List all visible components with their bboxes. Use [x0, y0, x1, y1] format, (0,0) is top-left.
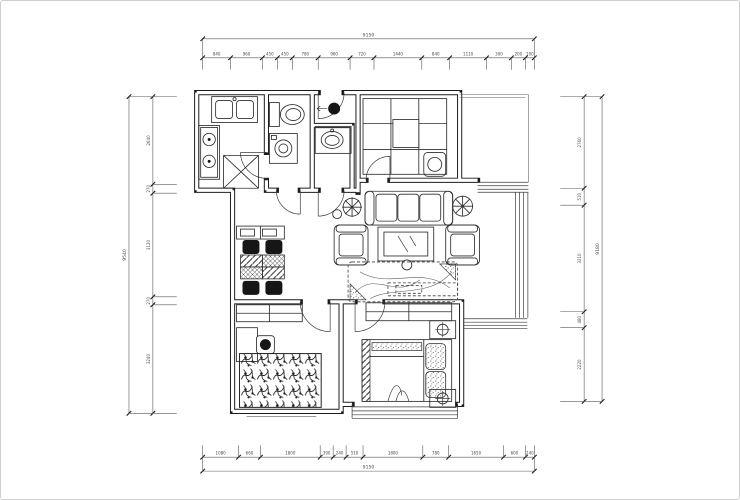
bedroom-left — [237, 305, 322, 408]
sofa-single-left-cushion — [339, 234, 363, 256]
burner-1-center — [208, 138, 211, 141]
fan-arrow-icon — [317, 106, 327, 111]
study-chair — [424, 152, 446, 176]
dim-label: 720 — [358, 51, 366, 56]
dim-label: 600 — [511, 451, 519, 456]
dining-table-q2 — [262, 255, 284, 267]
sink-basin-right — [237, 101, 254, 119]
vanity-counter — [315, 126, 351, 153]
blanket-fold — [388, 386, 409, 402]
dim-label: 780 — [432, 451, 440, 456]
bedroom-master — [362, 303, 456, 408]
window-bay-master — [352, 404, 458, 418]
sofa-single-left-arm-top — [336, 225, 366, 232]
pillow-1 — [426, 344, 446, 370]
dim-label: 2760 — [577, 137, 582, 148]
dim-total-label: 9150 — [363, 465, 375, 471]
sofa-cushion-1 — [376, 194, 397, 221]
sink-basin-left — [216, 101, 233, 119]
dim-label: 3210 — [577, 253, 582, 264]
dim-total-label: 9180 — [595, 243, 601, 255]
dim-label: 3120 — [146, 239, 151, 250]
washer-panel — [271, 135, 276, 139]
kitchen-door — [241, 152, 267, 178]
dim-label: 100 — [526, 51, 534, 56]
wardrobe-master-dividers — [366, 303, 452, 321]
sofa-armrest-right — [444, 191, 453, 225]
sideboard-item-2 — [262, 229, 276, 236]
floor-drain-box — [224, 155, 259, 188]
window-bay-right — [515, 192, 527, 317]
dimension-bottom: 1080660180039024051018007801650600240915… — [200, 445, 536, 473]
dim-label: 1800 — [388, 451, 399, 456]
dining-table-q1 — [241, 255, 263, 267]
dim-label: 3240 — [146, 354, 151, 365]
dining-table-q3 — [241, 267, 263, 279]
washer-drum — [275, 140, 292, 157]
desk-chair-seat — [260, 339, 271, 350]
window-top-right — [478, 182, 529, 192]
sink-faucet — [233, 98, 236, 101]
lamp-top-cross — [435, 322, 450, 337]
study-chair-seat — [428, 157, 442, 171]
sofa-three-seat — [365, 191, 453, 225]
dim-label: 240 — [526, 451, 534, 456]
dim-total-label: 9150 — [363, 32, 375, 38]
dim-label: 200 — [515, 51, 523, 56]
dim-label: 300 — [495, 51, 503, 56]
sideboard-item-1 — [241, 229, 255, 236]
washer-drum-inner — [279, 144, 288, 153]
kettle — [402, 260, 412, 270]
dim-label: 840 — [213, 51, 221, 56]
dim-label: 270 — [146, 184, 151, 192]
burner-2-center — [208, 160, 211, 163]
plant-left-leaves — [342, 197, 362, 217]
floor-plan-svg: 8409604504507809607201440840111030020010… — [1, 1, 739, 499]
sofa-cushion-2 — [398, 194, 419, 221]
dim-label: 1650 — [471, 451, 482, 456]
dim-total-label: 9540 — [122, 249, 128, 261]
dim-label: 480 — [577, 315, 582, 323]
dim-label: 510 — [577, 192, 582, 200]
dim-label: 840 — [432, 51, 440, 56]
dimension-right: 2760510321048022209180 — [560, 94, 604, 403]
living-room — [333, 191, 480, 302]
bed-left-floral — [240, 354, 322, 408]
pillow-2 — [426, 372, 446, 398]
dim-label: 2640 — [146, 135, 151, 146]
dim-label: 510 — [351, 451, 359, 456]
rug-corner-2 — [440, 264, 456, 280]
exhaust-fan-icon — [328, 103, 340, 115]
dim-label: 390 — [323, 451, 331, 456]
sofa-single-left-arm-bottom — [336, 258, 366, 265]
wardrobe-left-dividers — [237, 305, 303, 322]
stove-top — [201, 127, 218, 177]
dining-chair-3 — [243, 281, 260, 295]
tv-bench — [388, 283, 458, 296]
toilet-tank — [269, 103, 279, 127]
dining-table-q4 — [262, 267, 284, 279]
master-bedroom-door — [355, 302, 385, 332]
dining-chair-2 — [265, 240, 282, 254]
dim-label: 450 — [281, 51, 289, 56]
dining-chair-4 — [265, 281, 282, 295]
dimension-left: 2640270312027032409540 — [122, 94, 177, 415]
dim-label: 240 — [336, 451, 344, 456]
tatami-center-table — [393, 120, 419, 148]
plant-left-small — [333, 210, 342, 219]
dining-chair-1 — [243, 240, 260, 254]
dim-label: 960 — [243, 51, 251, 56]
dimension-top: 8409604504507809607201440840111030020010… — [200, 32, 536, 69]
washing-machine — [269, 133, 297, 163]
dim-label: 450 — [266, 51, 274, 56]
dim-label: 660 — [246, 451, 254, 456]
sofa-cushion-3 — [420, 194, 441, 221]
dim-label: 1110 — [463, 51, 474, 56]
sofa-single-right-arm-top — [448, 225, 478, 232]
dim-label: 2220 — [577, 359, 582, 370]
floorplan-canvas: 8409604504507809607201440840111030020010… — [0, 0, 740, 500]
dim-label: 1440 — [393, 51, 404, 56]
left-bedroom-door — [300, 302, 330, 332]
dim-label: 1800 — [285, 451, 296, 456]
bathroom — [269, 103, 304, 164]
sofa-armrest-left — [365, 191, 374, 225]
study-room — [363, 99, 447, 177]
window-bottom-right — [464, 319, 528, 329]
dining-area — [237, 226, 285, 295]
study-door — [366, 156, 390, 180]
balcony-platform-outline — [460, 95, 529, 183]
dim-label: 270 — [146, 297, 151, 305]
dim-label: 1080 — [216, 451, 227, 456]
toilet-seat — [286, 109, 301, 121]
bathroom-door — [276, 190, 300, 214]
bed-master-edge — [362, 340, 370, 402]
dim-label: 960 — [330, 51, 338, 56]
dim-label: 780 — [301, 51, 309, 56]
wash-basin — [321, 131, 343, 148]
wash-basin-inner — [325, 135, 339, 145]
sofa-single-right-cushion — [451, 234, 475, 256]
bed-master-blanket-strip — [372, 343, 422, 351]
kitchen — [199, 97, 259, 189]
